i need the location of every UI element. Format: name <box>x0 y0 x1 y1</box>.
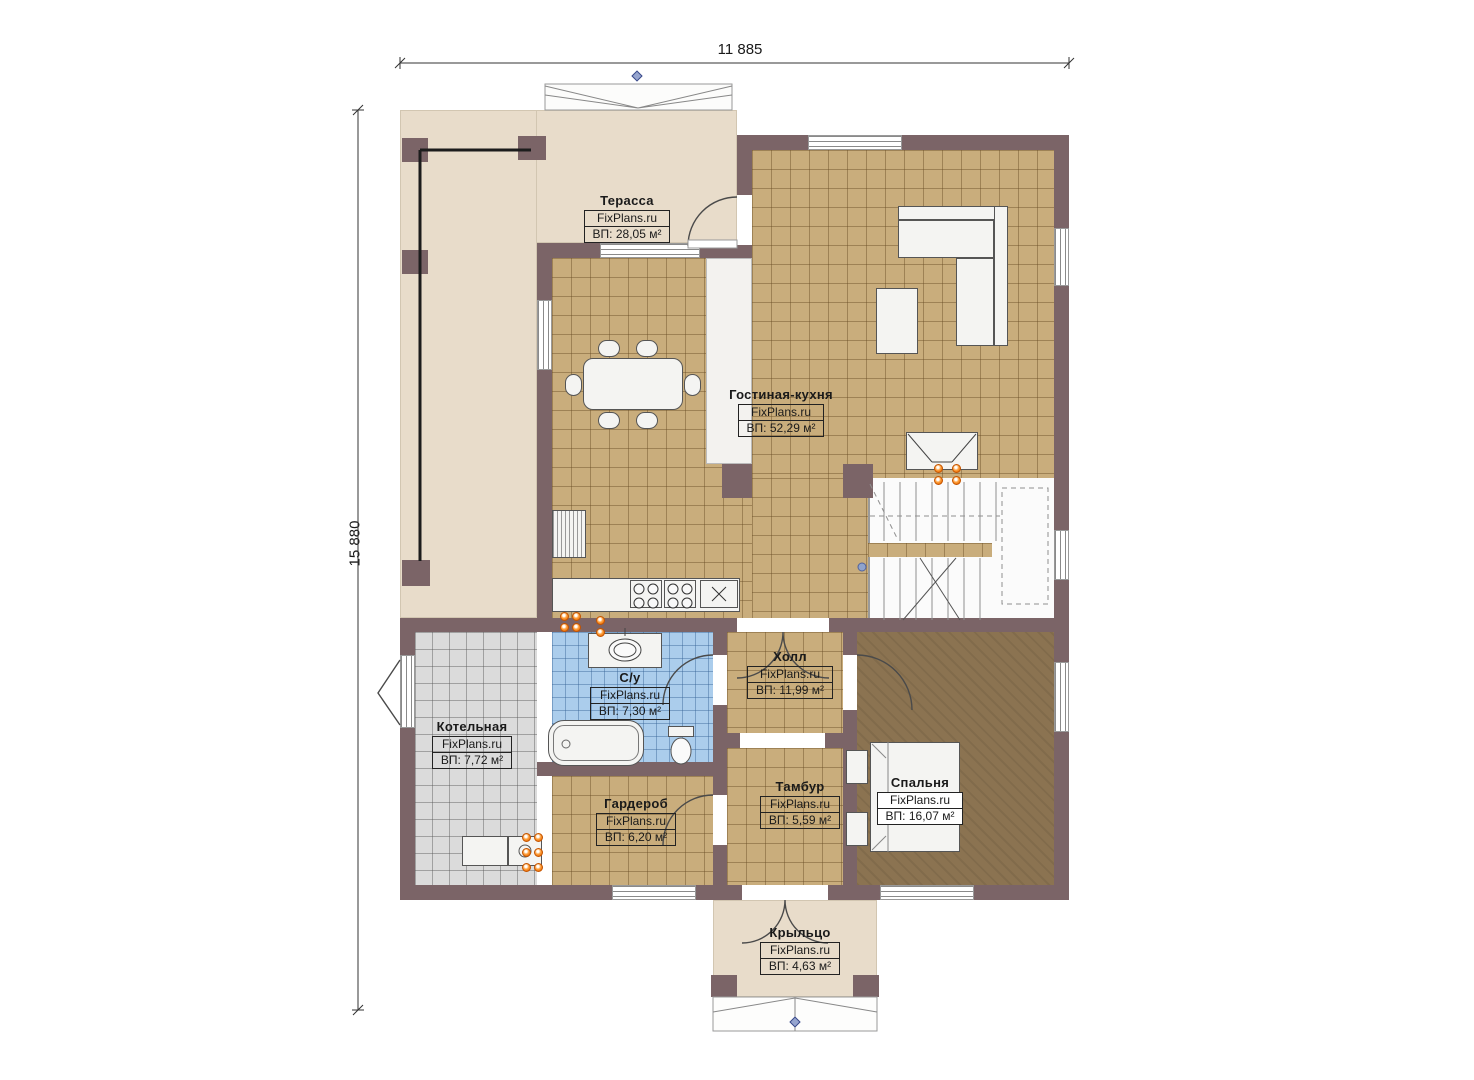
room-info-box: FixPlans.ru ВП: 16,07 м² <box>877 792 964 825</box>
socket-marker <box>534 833 543 842</box>
watermark: FixPlans.ru <box>591 688 669 704</box>
socket-marker <box>934 464 943 473</box>
socket-marker <box>596 616 605 625</box>
room-info-box: FixPlans.ru ВП: 7,72 м² <box>432 736 512 769</box>
room-label-vestibule: Тамбур FixPlans.ru ВП: 5,59 м² <box>738 779 862 829</box>
room-label-bathroom: С/у FixPlans.ru ВП: 7,30 м² <box>570 670 690 720</box>
socket-marker <box>952 476 961 485</box>
room-area: ВП: 52,29 м² <box>739 421 824 436</box>
watermark: FixPlans.ru <box>739 405 824 421</box>
room-label-living-kitchen: Гостиная-кухня FixPlans.ru ВП: 52,29 м² <box>706 387 856 437</box>
canopy <box>545 84 732 110</box>
tub-drain <box>562 740 570 748</box>
room-area: ВП: 4,63 м² <box>761 959 839 974</box>
terrace-door-leaf <box>688 240 737 248</box>
room-area: ВП: 6,20 м² <box>597 830 675 845</box>
room-name: Гостиная-кухня <box>706 387 856 402</box>
socket-marker <box>596 628 605 637</box>
stair-marker <box>858 563 866 571</box>
toilet-bowl <box>671 738 691 764</box>
room-label-porch: Крыльцо FixPlans.ru ВП: 4,63 м² <box>738 925 862 975</box>
watermark: FixPlans.ru <box>597 814 675 830</box>
watermark: FixPlans.ru <box>585 211 670 227</box>
socket-marker <box>534 863 543 872</box>
room-area: ВП: 7,72 м² <box>433 753 511 768</box>
socket-marker <box>572 612 581 621</box>
room-info-box: FixPlans.ru ВП: 4,63 м² <box>760 942 840 975</box>
watermark: FixPlans.ru <box>761 797 839 813</box>
watermark: FixPlans.ru <box>761 943 839 959</box>
watermark: FixPlans.ru <box>433 737 511 753</box>
room-label-wardrobe: Гардероб FixPlans.ru ВП: 6,20 м² <box>574 796 698 846</box>
socket-marker <box>534 848 543 857</box>
room-label-hall: Холл FixPlans.ru ВП: 11,99 м² <box>730 649 850 699</box>
socket-marker <box>522 863 531 872</box>
room-info-box: FixPlans.ru ВП: 6,20 м² <box>596 813 676 846</box>
socket-marker <box>560 612 569 621</box>
room-area: ВП: 16,07 м² <box>878 809 963 824</box>
room-label-terrace: Терасса FixPlans.ru ВП: 28,05 м² <box>562 193 692 243</box>
room-info-box: FixPlans.ru ВП: 11,99 м² <box>747 666 833 699</box>
floor-plan: 11 885 15 880 Терасса FixPlans.ru ВП: 28… <box>0 0 1474 1080</box>
room-name: Тамбур <box>738 779 862 794</box>
socket-marker <box>572 623 581 632</box>
socket-marker <box>560 623 569 632</box>
room-info-box: FixPlans.ru ВП: 5,59 м² <box>760 796 840 829</box>
washbasin <box>609 628 641 661</box>
stove-burners <box>634 584 692 608</box>
stair-treads <box>870 482 1048 620</box>
fireplace-hatch <box>908 434 976 462</box>
room-name: Холл <box>730 649 850 664</box>
room-name: Крыльцо <box>738 925 862 940</box>
socket-marker <box>522 833 531 842</box>
room-name: Гардероб <box>574 796 698 811</box>
dimension-lines <box>352 57 1074 1015</box>
room-label-bedroom: Спальня FixPlans.ru ВП: 16,07 м² <box>850 775 990 825</box>
room-area: ВП: 11,99 м² <box>748 683 832 698</box>
room-name: Котельная <box>410 719 534 734</box>
socket-marker <box>934 476 943 485</box>
room-info-box: FixPlans.ru ВП: 7,30 м² <box>590 687 670 720</box>
room-area: ВП: 28,05 м² <box>585 227 670 242</box>
watermark: FixPlans.ru <box>878 793 963 809</box>
plan-linework <box>0 0 1474 1080</box>
room-info-box: FixPlans.ru ВП: 52,29 м² <box>738 404 825 437</box>
room-label-boiler: Котельная FixPlans.ru ВП: 7,72 м² <box>410 719 534 769</box>
room-area: ВП: 5,59 м² <box>761 813 839 828</box>
socket-marker <box>952 464 961 473</box>
watermark: FixPlans.ru <box>748 667 832 683</box>
socket-marker <box>522 848 531 857</box>
sink-mark <box>712 587 726 601</box>
terrace-railing <box>420 150 531 561</box>
room-name: С/у <box>570 670 690 685</box>
room-name: Спальня <box>850 775 990 790</box>
room-name: Терасса <box>562 193 692 208</box>
room-area: ВП: 7,30 м² <box>591 704 669 719</box>
room-info-box: FixPlans.ru ВП: 28,05 м² <box>584 210 671 243</box>
